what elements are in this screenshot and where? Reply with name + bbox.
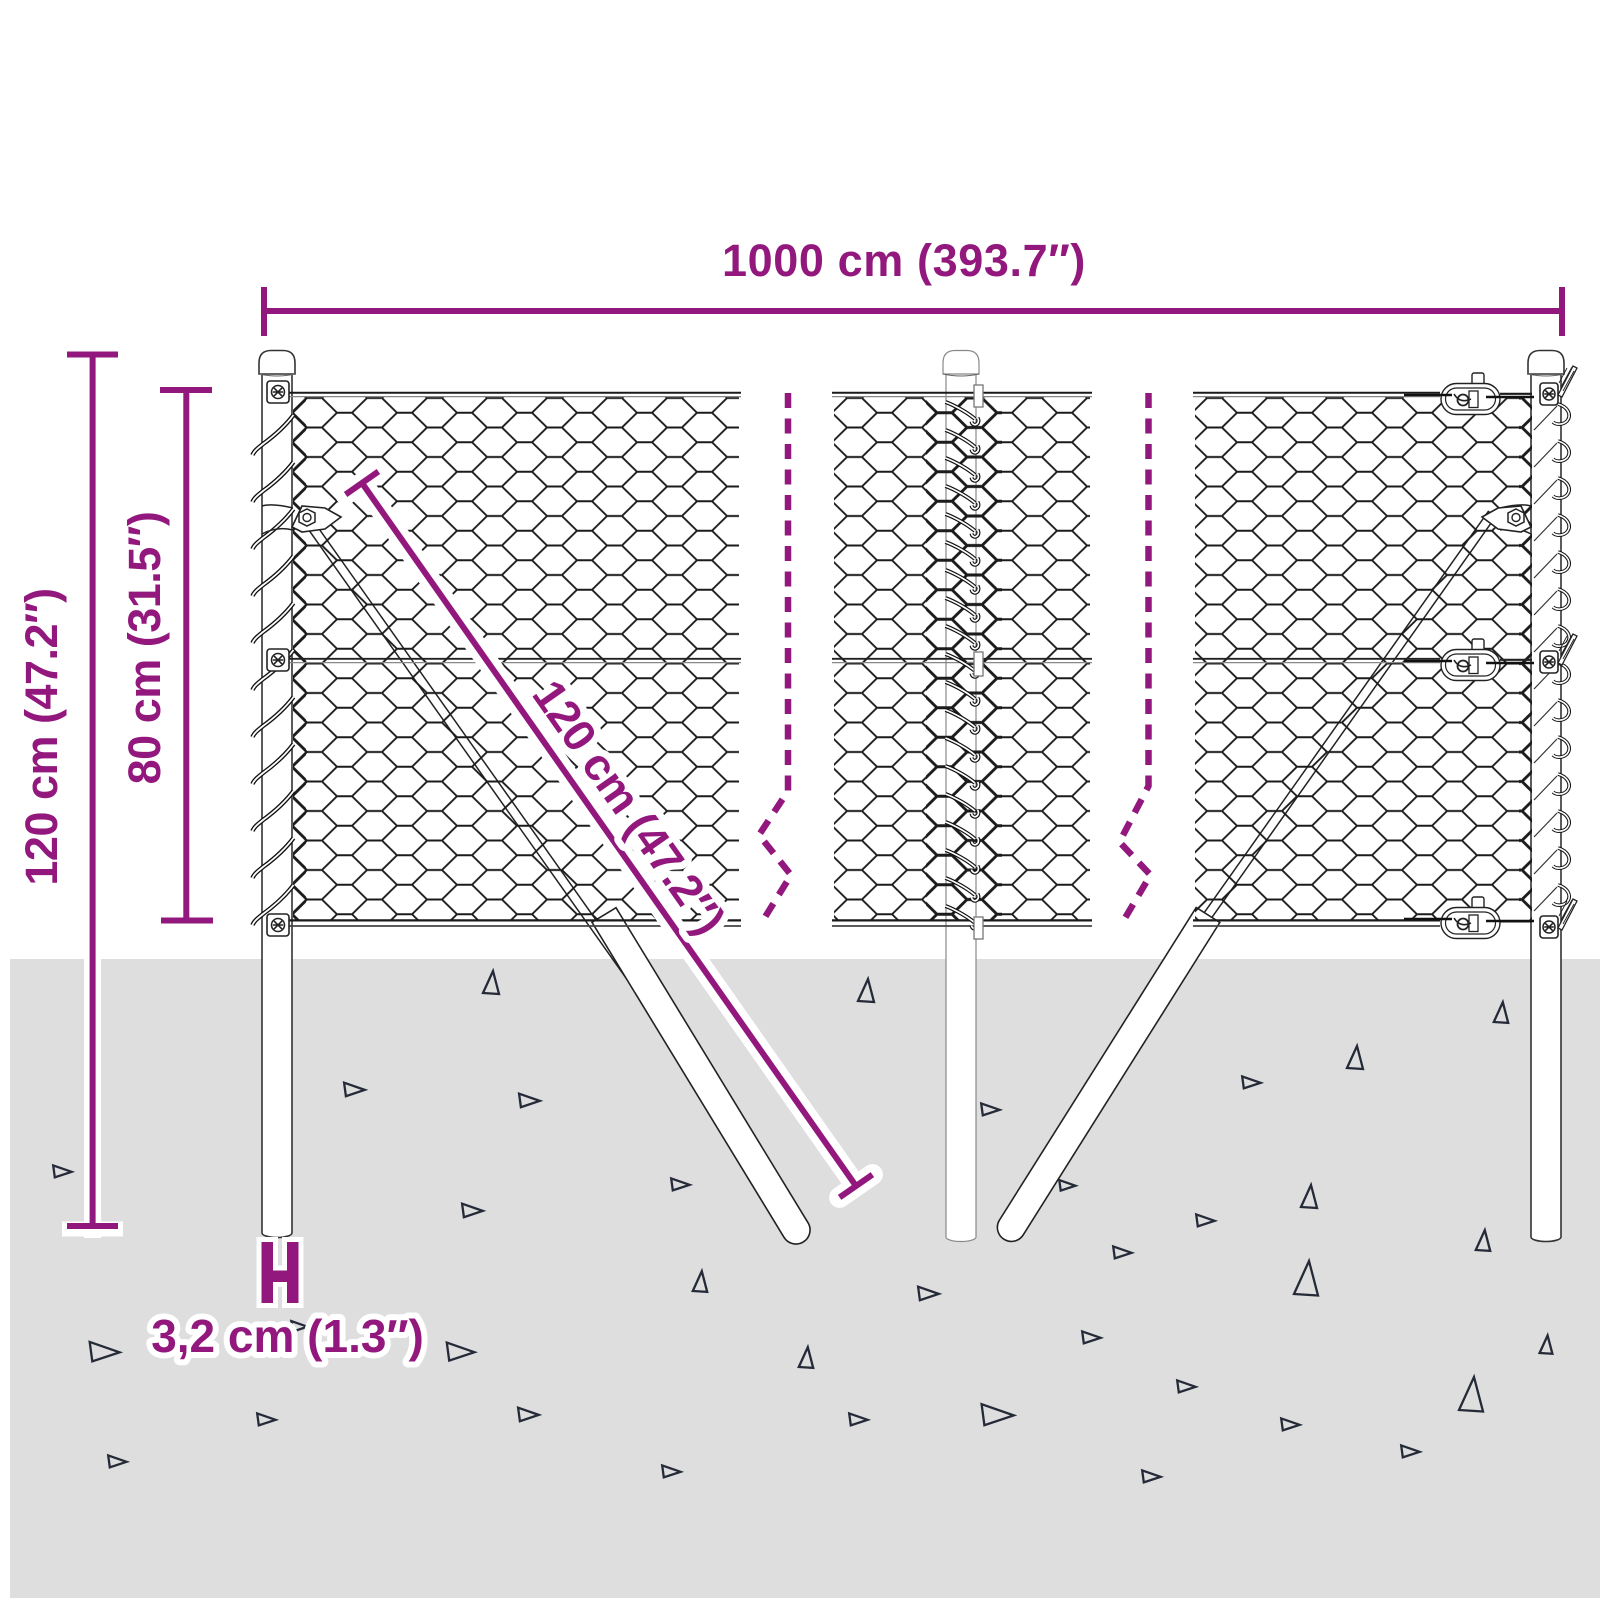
svg-text:80 cm (31.5″): 80 cm (31.5″) <box>119 512 170 785</box>
svg-text:1000 cm (393.7″): 1000 cm (393.7″) <box>722 235 1086 286</box>
svg-text:3,2 cm (1.3″): 3,2 cm (1.3″) <box>151 1310 424 1362</box>
svg-text:120 cm (47.2″): 120 cm (47.2″) <box>16 588 67 885</box>
